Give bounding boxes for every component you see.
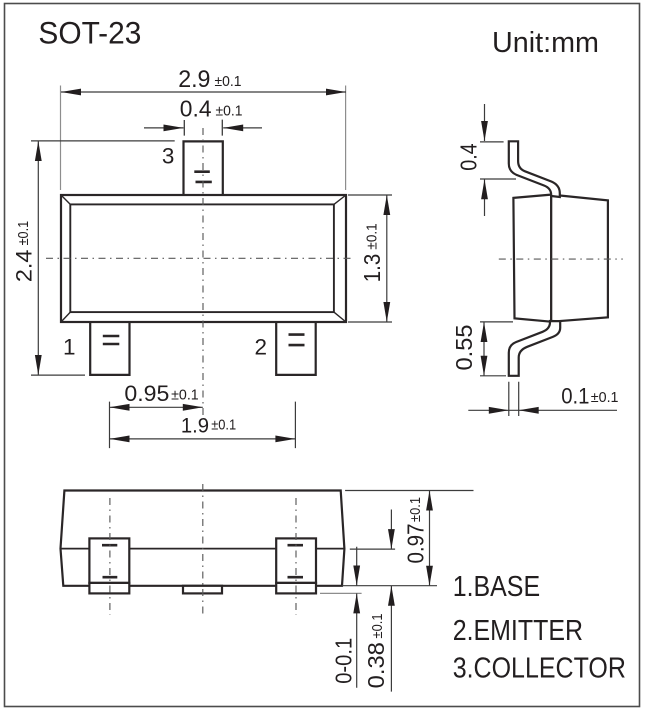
svg-text:±0.1: ±0.1	[211, 416, 236, 433]
svg-text:0.4: 0.4	[456, 143, 482, 171]
svg-text:0.38: 0.38	[363, 642, 389, 688]
svg-text:1.BASE: 1.BASE	[453, 571, 540, 603]
svg-text:±0.1: ±0.1	[364, 223, 381, 249]
svg-text:±0.1: ±0.1	[407, 497, 424, 522]
svg-text:0.95: 0.95	[124, 381, 169, 406]
svg-text:±0.1: ±0.1	[15, 221, 32, 246]
svg-text:±0.1: ±0.1	[591, 389, 619, 406]
svg-text:2.9: 2.9	[178, 66, 210, 93]
svg-text:1.3: 1.3	[359, 254, 385, 282]
svg-text:SOT-23: SOT-23	[38, 15, 141, 51]
svg-text:0.55: 0.55	[451, 325, 477, 371]
svg-text:0.97: 0.97	[403, 524, 429, 564]
svg-text:±0.1: ±0.1	[171, 387, 199, 404]
svg-text:2.EMITTER: 2.EMITTER	[453, 615, 583, 647]
svg-text:3.COLLECTOR: 3.COLLECTOR	[453, 653, 626, 685]
svg-text:±0.1: ±0.1	[216, 102, 243, 119]
svg-text:±0.1: ±0.1	[215, 73, 242, 90]
svg-text:Unit:mm: Unit:mm	[492, 27, 599, 59]
svg-text:3: 3	[162, 143, 175, 168]
svg-text:1: 1	[63, 334, 76, 359]
svg-text:0.4: 0.4	[180, 95, 212, 121]
svg-text:0.1: 0.1	[561, 384, 589, 409]
svg-text:0-0.1: 0-0.1	[331, 638, 357, 684]
svg-text:2: 2	[255, 335, 268, 360]
svg-text:±0.1: ±0.1	[369, 614, 386, 639]
svg-text:1.9: 1.9	[181, 413, 209, 437]
svg-text:2.4: 2.4	[12, 250, 37, 283]
